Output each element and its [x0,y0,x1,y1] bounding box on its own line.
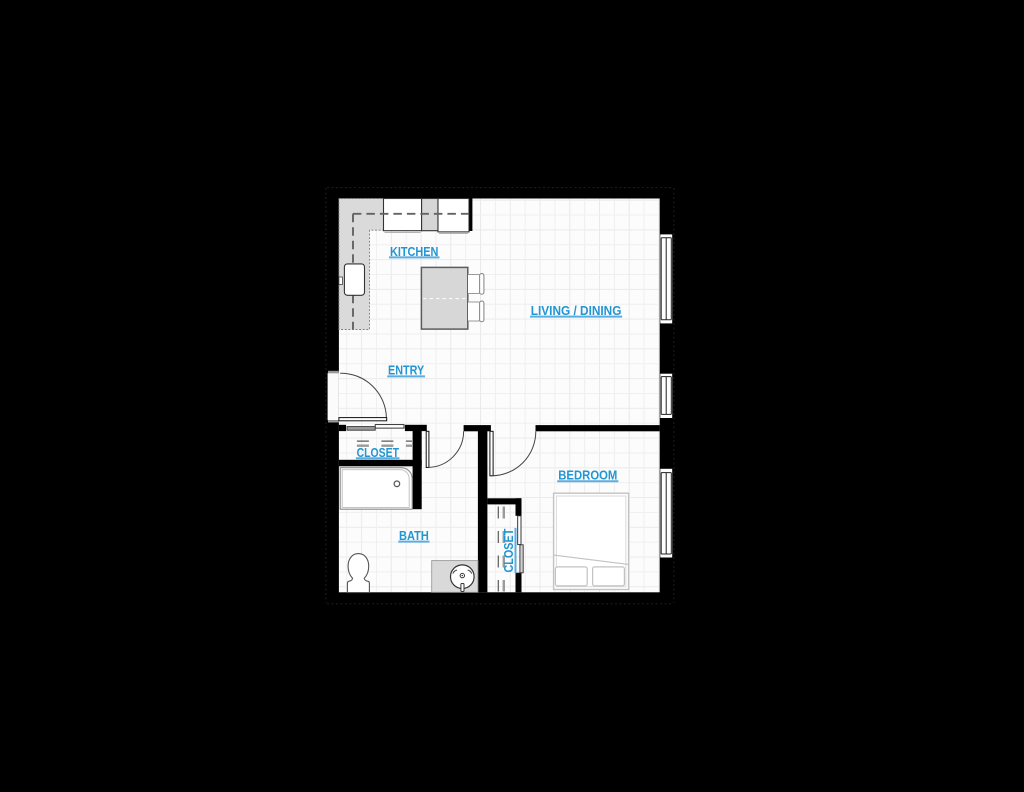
svg-text:CLOSET: CLOSET [502,528,516,572]
